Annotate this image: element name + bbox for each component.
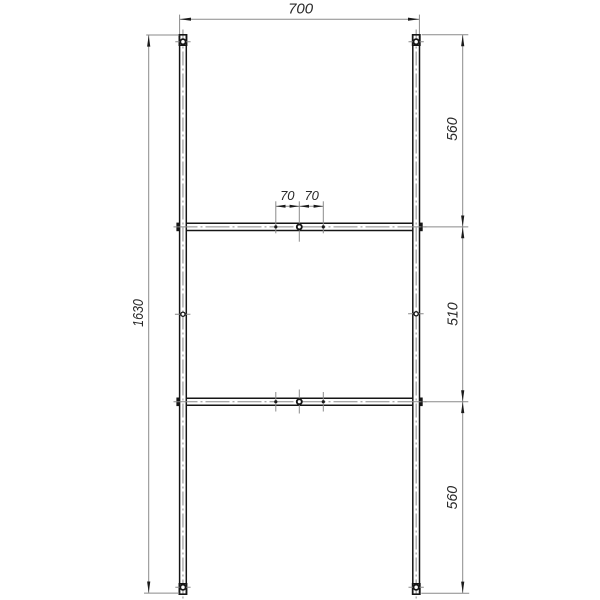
svg-text:70: 70 bbox=[304, 188, 319, 203]
svg-text:70: 70 bbox=[280, 188, 295, 203]
svg-text:510: 510 bbox=[445, 302, 461, 326]
svg-text:700: 700 bbox=[288, 1, 314, 18]
svg-text:560: 560 bbox=[445, 486, 461, 510]
svg-text:560: 560 bbox=[445, 117, 461, 141]
svg-text:1630: 1630 bbox=[130, 299, 146, 327]
